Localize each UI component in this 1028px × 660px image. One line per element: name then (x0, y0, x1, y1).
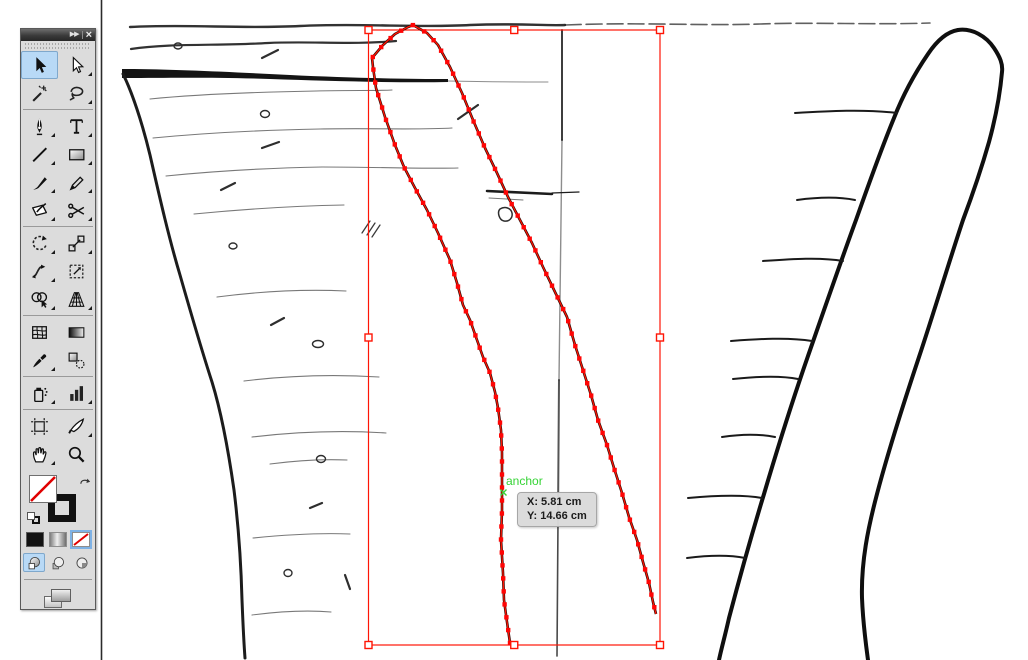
traced-path-underlay (372, 25, 656, 643)
tool-section-divider (23, 375, 93, 378)
symbol-sprayer-tool[interactable] (21, 379, 58, 407)
draw-normal-button[interactable] (23, 553, 45, 572)
mesh-tool[interactable] (21, 318, 58, 346)
bbox-handle[interactable] (365, 27, 372, 34)
paintbrush-icon (29, 172, 50, 193)
fill-swatch-none[interactable] (29, 475, 57, 503)
collapse-panel-button[interactable]: ▶▶ (70, 30, 79, 40)
panel-divider (24, 579, 92, 580)
scale-tool[interactable] (58, 229, 95, 257)
paintbrush-tool[interactable] (21, 168, 58, 196)
rotate-tool[interactable] (21, 229, 58, 257)
rectangle-tool[interactable] (58, 140, 95, 168)
scissors-tool[interactable] (58, 196, 95, 224)
close-panel-button[interactable]: × (86, 30, 92, 40)
free-transform-icon (66, 261, 87, 282)
lasso-icon (66, 83, 87, 104)
titlebar-divider (82, 31, 83, 39)
default-fill-stroke-icon[interactable] (27, 512, 41, 525)
perspective-grid-tool[interactable] (58, 285, 95, 313)
screen-mode-icon (51, 589, 71, 602)
stroke-swatch-inner (55, 501, 69, 515)
scale-icon (66, 233, 87, 254)
free-transform-tool[interactable] (58, 257, 95, 285)
bbox-handle[interactable] (511, 27, 518, 34)
gradient-icon (66, 322, 87, 343)
shape-builder-icon (29, 289, 50, 310)
bbox-handle[interactable] (657, 334, 664, 341)
fill-stroke-indicator (21, 472, 95, 528)
tools-panel-titlebar[interactable]: ▶▶ × (21, 29, 95, 41)
tooltip-y-value: Y: 14.66 cm (527, 509, 596, 523)
selection-overlay[interactable] (365, 23, 664, 649)
blob-brush-tool[interactable] (21, 196, 58, 224)
scanned-drawing (122, 23, 1002, 660)
blend-icon (66, 350, 87, 371)
lasso-tool[interactable] (58, 79, 95, 107)
artboard-canvas[interactable]: anchor X: 5.81 cm Y: 14.66 cm (0, 0, 1028, 660)
drawing-mode-buttons (21, 553, 95, 572)
hand-tool[interactable] (21, 440, 58, 468)
bbox-handle[interactable] (365, 642, 372, 649)
hand-icon (29, 444, 50, 465)
swap-fill-stroke-icon[interactable] (79, 474, 92, 487)
measurement-tooltip: X: 5.81 cm Y: 14.66 cm (517, 492, 597, 527)
bbox-handle[interactable] (365, 334, 372, 341)
color-button[interactable] (26, 532, 44, 547)
none-button[interactable] (72, 532, 90, 547)
none-slash-icon (73, 533, 89, 546)
line-tool[interactable] (21, 140, 58, 168)
type-tool[interactable] (58, 112, 95, 140)
none-slash-icon (30, 476, 56, 502)
tool-section-divider (23, 314, 93, 317)
shape-builder-tool[interactable] (21, 285, 58, 313)
zoom-icon (66, 444, 87, 465)
pen-tool[interactable] (21, 112, 58, 140)
magic-wand-icon (29, 83, 50, 104)
smart-guide-anchor-label: anchor (506, 474, 543, 488)
screen-mode-button[interactable] (42, 587, 74, 611)
zoom-tool[interactable] (58, 440, 95, 468)
slice-tool[interactable] (58, 412, 95, 440)
eyedropper-tool[interactable] (21, 346, 58, 374)
slice-icon (66, 416, 87, 437)
width-tool[interactable] (21, 257, 58, 285)
tools-panel: ▶▶ × (20, 28, 96, 610)
color-type-buttons (21, 532, 95, 547)
scissors-icon (66, 200, 87, 221)
artboard-icon (29, 416, 50, 437)
pencil-tool[interactable] (58, 168, 95, 196)
eyedropper-icon (29, 350, 50, 371)
direct-selection-tool[interactable] (58, 51, 95, 79)
selection-tool[interactable] (21, 51, 58, 79)
rotate-icon (29, 233, 50, 254)
application-window: anchor X: 5.81 cm Y: 14.66 cm (0, 0, 1028, 660)
mesh-icon (29, 322, 50, 343)
symbol-sprayer-icon (29, 383, 50, 404)
line-icon (29, 144, 50, 165)
pen-icon (29, 116, 50, 137)
column-graph-tool[interactable] (58, 379, 95, 407)
selection-icon (29, 55, 50, 76)
tooltip-x-value: X: 5.81 cm (527, 495, 596, 509)
type-icon (66, 116, 87, 137)
bbox-handle[interactable] (511, 642, 518, 649)
blob-brush-icon (29, 200, 50, 221)
draw-inside-button[interactable] (71, 553, 93, 572)
pencil-icon (66, 172, 87, 193)
panel-grip[interactable] (25, 43, 91, 50)
gradient-button[interactable] (49, 532, 67, 547)
perspective-grid-icon (66, 289, 87, 310)
anchor-points[interactable] (371, 23, 657, 645)
bbox-handle[interactable] (657, 642, 664, 649)
rectangle-icon (66, 144, 87, 165)
column-graph-icon (66, 383, 87, 404)
selected-path[interactable] (372, 25, 656, 643)
gradient-tool[interactable] (58, 318, 95, 346)
tool-section-divider (23, 408, 93, 411)
direct-selection-icon (66, 55, 87, 76)
artboard-tool[interactable] (21, 412, 58, 440)
tool-section-divider (23, 108, 93, 111)
width-icon (29, 261, 50, 282)
selection-bounding-box[interactable] (369, 30, 661, 645)
blend-tool[interactable] (58, 346, 95, 374)
tool-grid (21, 51, 95, 468)
tool-section-divider (23, 225, 93, 228)
bbox-handle[interactable] (657, 27, 664, 34)
magic-wand-tool[interactable] (21, 79, 58, 107)
draw-behind-button[interactable] (47, 553, 69, 572)
